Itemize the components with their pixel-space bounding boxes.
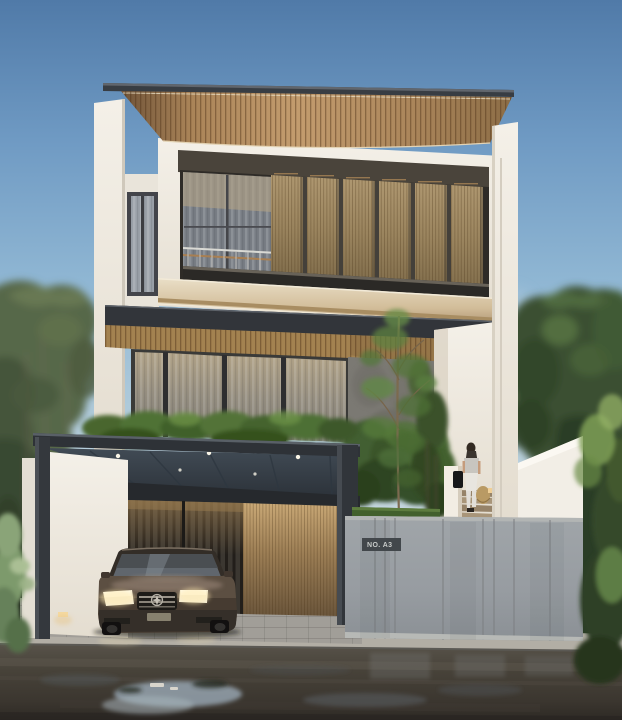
svg-text:NO. A3: NO. A3 [367,542,392,549]
